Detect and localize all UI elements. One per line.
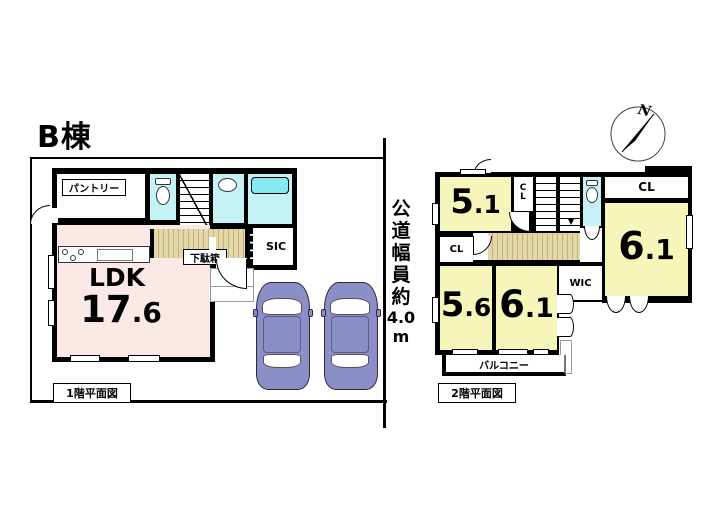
car-mirror — [321, 309, 326, 317]
pantry-room: パントリー — [57, 174, 145, 218]
door-arc — [557, 294, 574, 314]
window — [70, 355, 100, 362]
window — [48, 300, 55, 326]
room-area: 5.6 — [440, 288, 492, 328]
car-icon — [256, 282, 310, 390]
car-roof — [263, 316, 301, 353]
area-dec: .1 — [474, 192, 501, 217]
f2-closet-left: CL — [440, 237, 473, 262]
car-windshield — [262, 298, 302, 315]
f2-toilet-room — [583, 177, 601, 226]
window — [460, 169, 486, 175]
area-int: 5 — [450, 185, 474, 219]
car-roof — [331, 316, 369, 353]
stove-burner-icon — [62, 249, 68, 255]
car-icon — [324, 282, 378, 390]
car-rear-window — [331, 354, 369, 368]
floor1-caption: 1階平面図 — [53, 383, 131, 403]
site-boundary-right — [383, 138, 386, 428]
room-area: 5.1 — [440, 185, 511, 225]
f1-bathroom — [248, 174, 292, 224]
road-char: 約 — [391, 286, 410, 308]
door-arc — [557, 317, 574, 337]
ldk-name: LDK — [57, 263, 177, 291]
room-area: 6.1 — [605, 227, 688, 271]
ldk-area: 17.6 — [57, 291, 185, 331]
sic-room: SIC — [250, 228, 293, 265]
toilet-icon — [155, 178, 171, 185]
car-mirror — [308, 309, 313, 317]
f2-room-5-6: 5.6 — [440, 266, 492, 350]
room-area: 6.1 — [496, 286, 557, 330]
stove-burner-icon — [78, 249, 84, 255]
window — [432, 297, 439, 323]
window — [686, 215, 693, 249]
f2-closet-top: CL — [605, 177, 688, 199]
f2-room-5-1: 5.1 — [440, 177, 511, 231]
f1-washroom — [213, 174, 244, 223]
road-char: m — [393, 327, 410, 346]
backdoor-arc — [30, 205, 50, 224]
porch-step-line — [210, 286, 254, 287]
wic-label: WIC — [559, 275, 602, 291]
cl-label: CL — [605, 179, 688, 195]
toilet-bowl-icon — [586, 187, 598, 203]
window — [128, 355, 160, 362]
car-mirror — [376, 309, 381, 317]
floor2-caption: 2階平面図 — [438, 383, 516, 403]
f2-room-6-1-right: 6.1 — [605, 203, 688, 296]
double-door-arc — [606, 296, 626, 313]
stove-burner-icon — [70, 255, 76, 261]
toilet-bowl-icon — [156, 186, 170, 205]
site-boundary-top — [31, 157, 385, 159]
ldk-area-dec: .6 — [132, 299, 162, 327]
window — [533, 349, 549, 355]
double-door-arc — [629, 296, 649, 313]
road-char: 公 — [391, 198, 410, 220]
kitchen-sink-counter — [97, 249, 133, 261]
balcony-label: バルコニー — [446, 357, 562, 371]
cl-label: CL — [518, 184, 528, 202]
area-int: 5 — [441, 288, 465, 322]
car-windshield — [330, 298, 370, 315]
pantry-label: パントリー — [62, 179, 126, 196]
window — [48, 255, 55, 289]
car-mirror — [253, 309, 258, 317]
building-title: B棟 — [37, 112, 92, 156]
road-char: 員 — [391, 264, 410, 286]
bathtub-icon — [251, 177, 289, 194]
road-width-label: 公 道 幅 員 約 4.0 m — [388, 198, 414, 346]
cl-label: CL — [440, 241, 473, 257]
kitchen-counter — [58, 246, 150, 263]
ldk-area-int: 17 — [80, 291, 132, 328]
window — [452, 349, 478, 355]
road-char: 道 — [391, 220, 410, 242]
f1-toilet-room — [150, 174, 176, 220]
stairs-down-arrow: ▼ — [568, 218, 574, 226]
area-int: 6 — [618, 227, 644, 265]
floor-plan-canvas: B棟 パントリー LDK 17.6 下駄箱 SIC — [0, 0, 705, 525]
f2-room-6-1-bottom: 6.1 — [496, 266, 557, 350]
road-char: 幅 — [391, 242, 410, 264]
road-char: 4.0 — [387, 308, 415, 327]
site-boundary-left — [30, 157, 32, 403]
area-int: 6 — [499, 286, 525, 323]
f1-opening — [209, 237, 216, 253]
f2-closet-vertical: CL — [514, 177, 533, 211]
f2-hallway-floor — [488, 233, 582, 260]
area-dec: .1 — [645, 236, 675, 264]
area-dec: .1 — [525, 295, 554, 322]
window — [432, 203, 439, 225]
sink-icon — [218, 178, 237, 192]
car-rear-window — [263, 354, 301, 368]
sic-label: SIC — [259, 238, 293, 254]
area-dec: .6 — [464, 295, 491, 320]
backdoor-opening — [52, 208, 58, 223]
compass: N — [608, 104, 668, 164]
toilet-icon — [586, 180, 598, 186]
window — [498, 349, 528, 355]
balcony: バルコニー — [442, 355, 566, 376]
f1-stairs — [180, 174, 209, 228]
